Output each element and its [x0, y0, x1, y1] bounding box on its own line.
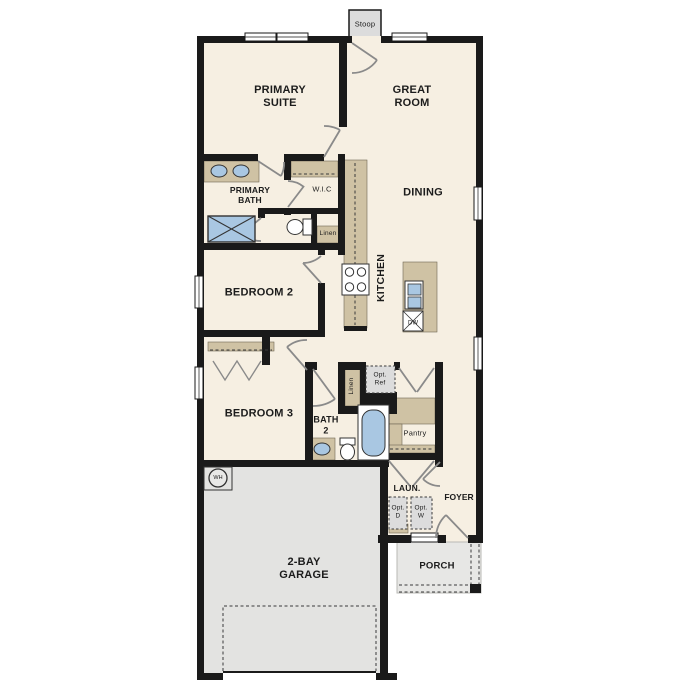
- porch-post: [470, 584, 481, 593]
- label-linen-primary: Linen: [320, 230, 337, 238]
- island-sink-icon: [405, 281, 423, 309]
- label-dining: DINING: [403, 187, 443, 200]
- label-laundry: LAUN.: [394, 483, 421, 493]
- label-primary-bath: PRIMARYBATH: [230, 185, 270, 205]
- label-wic: W.I.C: [312, 186, 331, 195]
- toilet-icon: [340, 438, 355, 460]
- bathtub-icon: [358, 405, 389, 460]
- label-opt-dryer: Opt.D: [391, 504, 404, 519]
- label-bath2: BATH2: [313, 414, 338, 435]
- shower-icon: [208, 216, 255, 242]
- label-water-heater: WH: [213, 475, 222, 481]
- bathroom-sink-icon: [211, 165, 227, 177]
- toilet-icon: [287, 219, 312, 235]
- label-garage: 2-BAYGARAGE: [279, 556, 328, 582]
- window: [411, 533, 438, 542]
- bathroom-sink-icon: [314, 443, 330, 455]
- label-bedroom2: BEDROOM 2: [225, 287, 293, 300]
- label-pantry: Pantry: [404, 430, 427, 439]
- label-bedroom3: BEDROOM 3: [225, 408, 293, 421]
- label-foyer: FOYER: [444, 492, 473, 502]
- label-kitchen: KITCHEN: [375, 254, 387, 302]
- bathroom-sink-icon: [233, 165, 249, 177]
- label-porch: PORCH: [419, 560, 454, 571]
- pantry-shelf-strip: [388, 445, 435, 453]
- label-opt-ref: Opt.Ref: [373, 371, 386, 386]
- label-great-room: GREATROOM: [393, 84, 432, 110]
- wic-shelf: [291, 161, 338, 177]
- floor-plan: Stoop PRIMARYSUITE GREATROOM DINING PRIM…: [0, 0, 687, 687]
- floor-plan-drawing: [0, 0, 687, 687]
- label-dishwasher: DW: [408, 320, 418, 327]
- label-stoop: Stoop: [355, 21, 376, 30]
- label-opt-washer: Opt.W: [414, 504, 427, 519]
- label-linen-bath2: Linen: [348, 378, 356, 395]
- stove-icon: [342, 264, 369, 295]
- label-primary-suite: PRIMARYSUITE: [254, 84, 306, 110]
